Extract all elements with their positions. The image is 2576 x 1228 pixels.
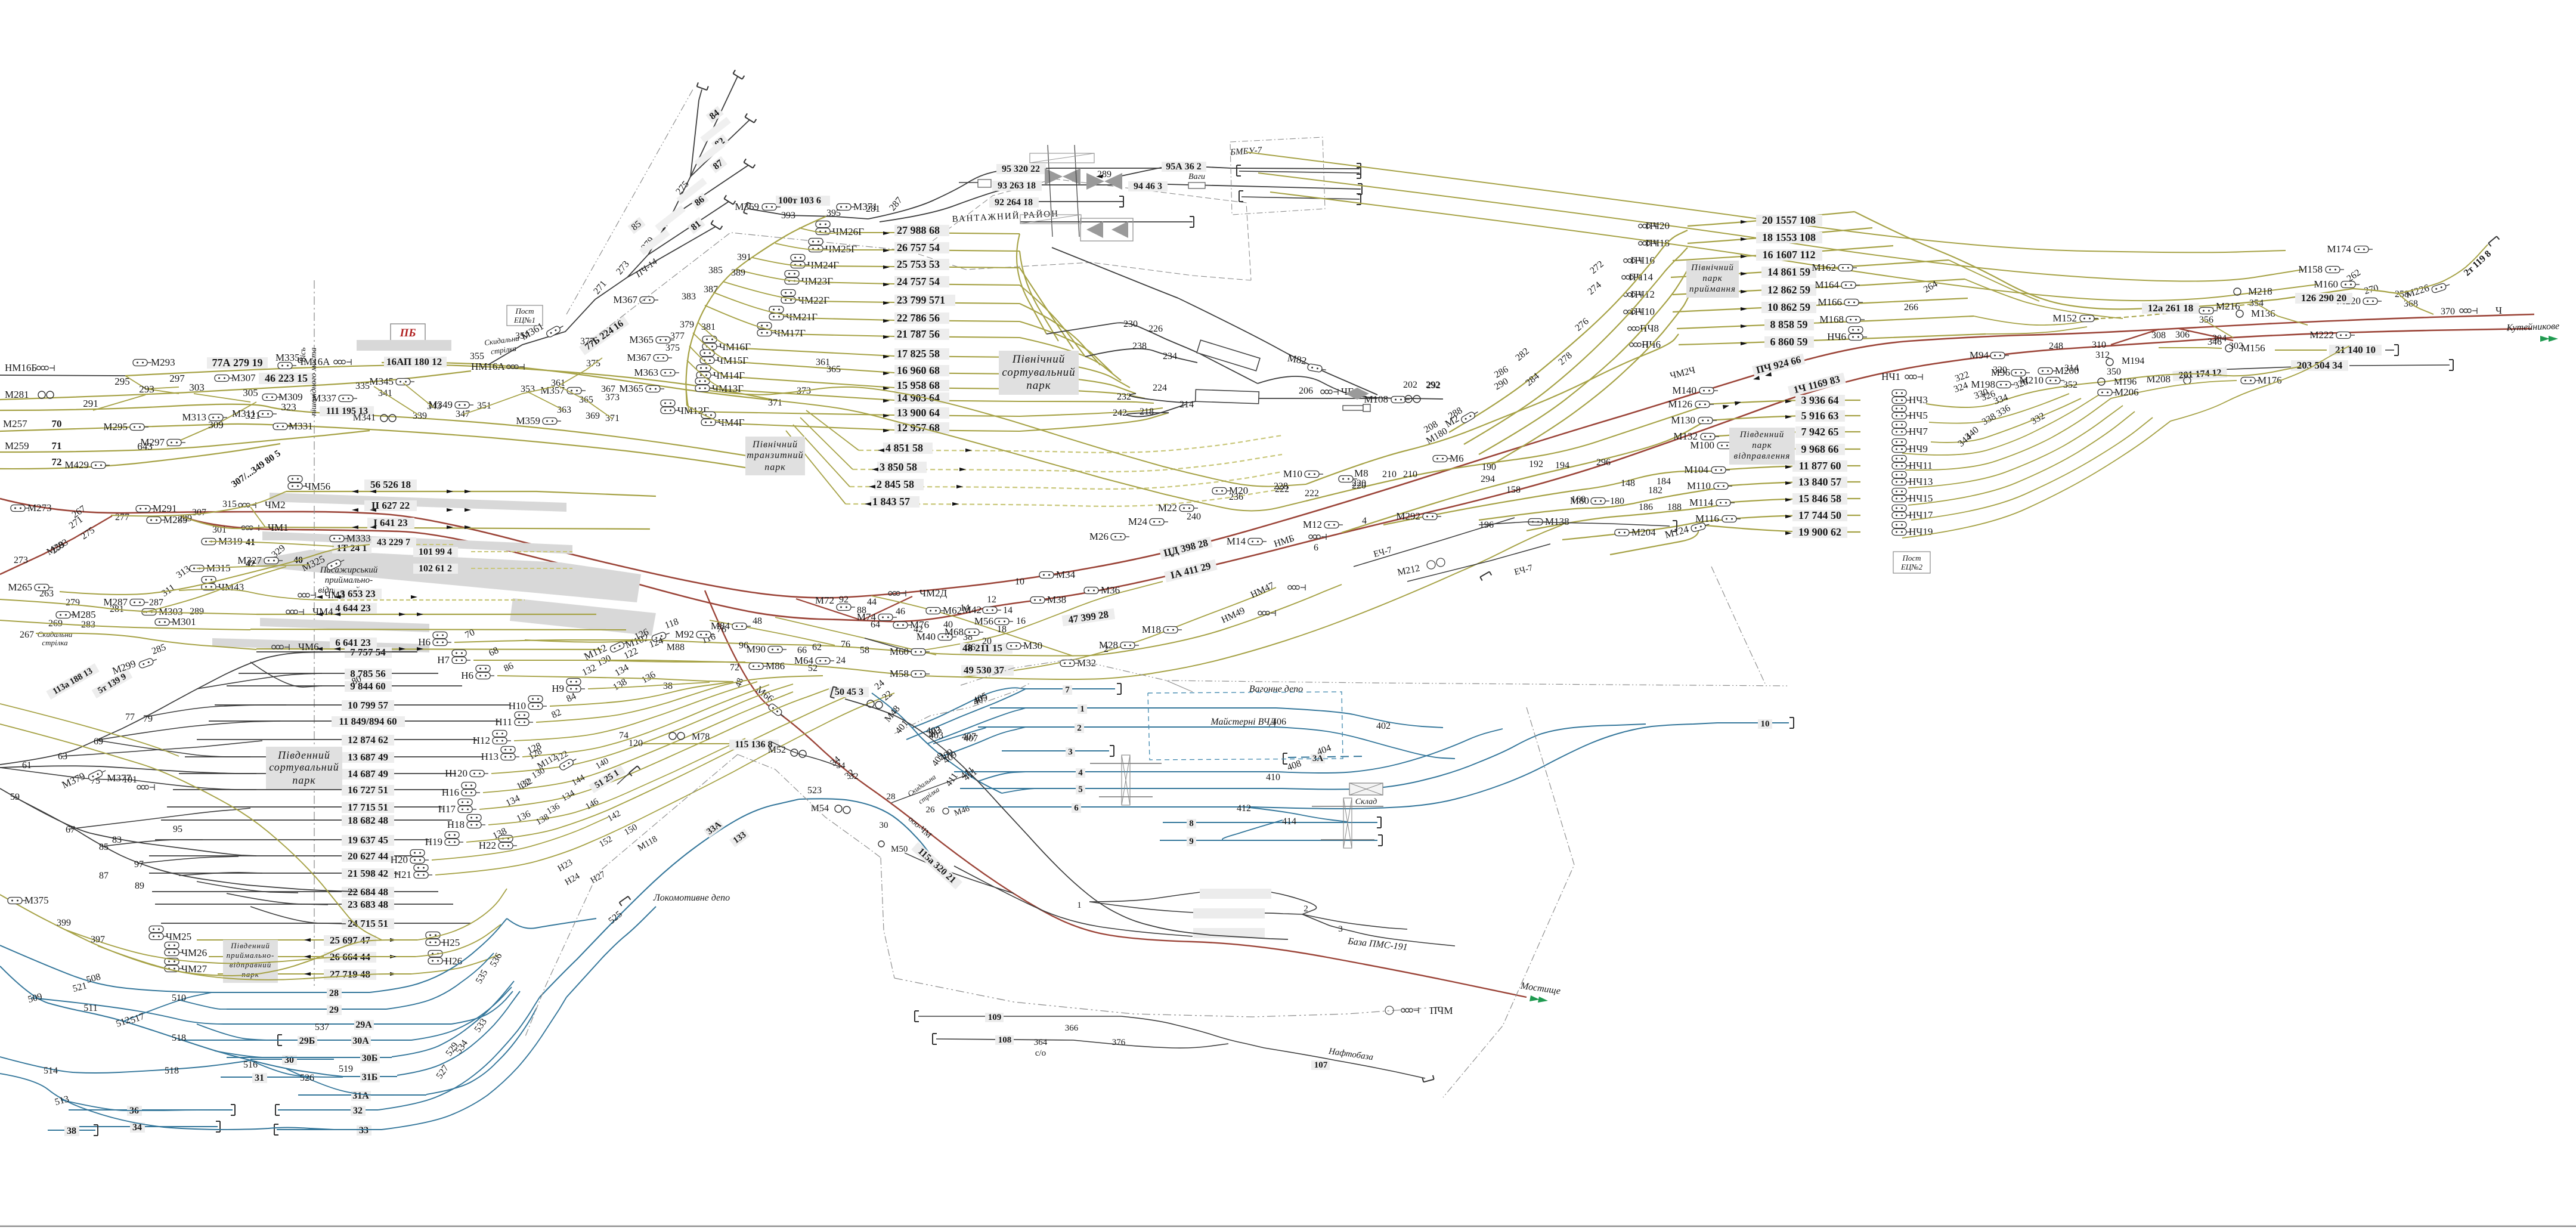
svg-text:Скидальна: Скидальна <box>38 630 73 639</box>
svg-text:ЧМ56: ЧМ56 <box>305 481 330 492</box>
svg-text:24 715 51: 24 715 51 <box>348 918 388 929</box>
svg-text:22 786 56: 22 786 56 <box>897 312 940 324</box>
svg-text:21 598 42: 21 598 42 <box>348 868 388 879</box>
svg-text:ПЧМ: ПЧМ <box>1430 1005 1453 1016</box>
svg-text:11 849/894 60: 11 849/894 60 <box>339 716 397 727</box>
svg-text:36: 36 <box>966 642 976 652</box>
svg-text:парк: парк <box>292 774 315 786</box>
svg-text:297: 297 <box>169 373 185 384</box>
svg-text:8: 8 <box>1189 819 1194 828</box>
svg-text:365: 365 <box>826 364 841 375</box>
svg-text:95 320 22: 95 320 22 <box>1002 164 1040 174</box>
svg-text:281: 281 <box>866 204 880 214</box>
svg-text:Н12: Н12 <box>473 735 490 746</box>
svg-text:23 683 48: 23 683 48 <box>348 899 388 910</box>
svg-text:289: 289 <box>1097 169 1111 180</box>
svg-text:100т 103 6: 100т 103 6 <box>778 196 821 206</box>
svg-text:120: 120 <box>628 738 643 748</box>
svg-text:16АП 180 12: 16АП 180 12 <box>386 356 442 367</box>
svg-text:М52: М52 <box>768 745 786 755</box>
svg-text:306: 306 <box>2175 330 2190 340</box>
svg-text:56 526 18: 56 526 18 <box>370 479 411 490</box>
svg-text:Склад: Склад <box>1355 797 1377 806</box>
svg-text:20 627 44: 20 627 44 <box>348 850 389 862</box>
svg-text:М363: М363 <box>634 367 658 378</box>
svg-text:М349: М349 <box>428 399 453 410</box>
svg-text:М194: М194 <box>2122 356 2144 366</box>
svg-text:парк: парк <box>1752 441 1772 450</box>
svg-text:НЧ7: НЧ7 <box>1909 426 1928 437</box>
svg-text:3 936 64: 3 936 64 <box>1801 394 1839 406</box>
svg-text:79: 79 <box>143 714 153 724</box>
svg-text:230: 230 <box>1123 319 1138 329</box>
svg-text:28: 28 <box>887 792 896 802</box>
svg-text:М34: М34 <box>1056 569 1076 580</box>
svg-text:248: 248 <box>2049 341 2063 351</box>
svg-text:309: 309 <box>208 419 224 431</box>
svg-text:ЧМ3: ЧМ3 <box>324 589 345 601</box>
svg-text:ПЧ20: ПЧ20 <box>1646 220 1670 231</box>
svg-text:190: 190 <box>1482 462 1496 472</box>
svg-text:19 637 45: 19 637 45 <box>348 834 388 846</box>
svg-text:М196: М196 <box>2114 377 2137 387</box>
svg-text:202: 202 <box>1403 380 1417 390</box>
svg-text:ЧМ1: ЧМ1 <box>268 522 289 533</box>
svg-text:ЧМ4Г: ЧМ4Г <box>718 417 745 428</box>
svg-text:20 1557 108: 20 1557 108 <box>1762 214 1816 226</box>
svg-text:294: 294 <box>1481 474 1495 484</box>
svg-text:385: 385 <box>708 265 723 276</box>
svg-text:516: 516 <box>243 1060 258 1070</box>
svg-text:ЧМ43: ЧМ43 <box>218 581 244 593</box>
svg-text:М265: М265 <box>8 581 32 593</box>
svg-text:289: 289 <box>190 607 204 617</box>
svg-text:10: 10 <box>1015 577 1024 587</box>
svg-text:М40: М40 <box>917 631 936 642</box>
svg-text:М86: М86 <box>766 660 785 672</box>
svg-text:29: 29 <box>329 1005 339 1015</box>
svg-text:М281: М281 <box>5 389 29 400</box>
svg-text:148: 148 <box>1621 478 1635 488</box>
svg-text:66: 66 <box>797 645 807 655</box>
svg-text:203 504 34: 203 504 34 <box>2297 360 2343 371</box>
svg-text:12 874 62: 12 874 62 <box>348 734 388 746</box>
svg-text:399: 399 <box>57 918 71 928</box>
svg-text:М359: М359 <box>516 415 540 426</box>
svg-text:46: 46 <box>896 607 905 617</box>
svg-text:95А 36 2: 95А 36 2 <box>1166 162 1202 172</box>
svg-text:М104: М104 <box>1684 464 1708 475</box>
svg-text:М88: М88 <box>667 642 685 652</box>
svg-text:М22: М22 <box>1158 502 1177 514</box>
svg-text:сортувальний: сортувальний <box>269 761 339 773</box>
svg-text:М138: М138 <box>1545 516 1569 527</box>
svg-text:М114: М114 <box>1689 497 1713 508</box>
svg-text:232: 232 <box>1117 392 1131 402</box>
svg-text:ЧМ25Г: ЧМ25Г <box>825 243 857 255</box>
svg-text:6 860 59: 6 860 59 <box>1770 336 1808 348</box>
svg-text:277: 277 <box>115 512 129 522</box>
svg-text:М30: М30 <box>1023 640 1042 651</box>
svg-text:М375: М375 <box>24 895 49 906</box>
svg-text:76: 76 <box>841 639 850 649</box>
svg-text:М301: М301 <box>172 616 196 627</box>
svg-text:226: 226 <box>1148 324 1163 334</box>
svg-text:М110: М110 <box>1687 480 1711 491</box>
svg-text:16 727 51: 16 727 51 <box>348 784 388 796</box>
svg-text:387: 387 <box>704 284 718 295</box>
svg-text:Південний: Південний <box>230 941 270 950</box>
svg-text:Н9: Н9 <box>552 683 564 694</box>
svg-text:М166: М166 <box>1818 296 1842 308</box>
svg-text:188: 188 <box>1667 502 1682 512</box>
svg-text:ЧМ24Г: ЧМ24Г <box>807 259 839 271</box>
svg-text:31Б: 31Б <box>362 1072 378 1082</box>
svg-text:М96: М96 <box>1991 367 2010 378</box>
svg-text:М313: М313 <box>182 412 206 423</box>
svg-text:НЧ13: НЧ13 <box>1909 476 1933 487</box>
svg-text:М156: М156 <box>2241 342 2265 354</box>
svg-text:Н17: Н17 <box>438 803 456 815</box>
svg-text:М168: М168 <box>1819 314 1844 325</box>
svg-text:29А: 29А <box>355 1020 372 1030</box>
svg-text:ЧМ2Д: ЧМ2Д <box>919 587 948 599</box>
svg-text:М8: М8 <box>1354 468 1368 479</box>
svg-text:парк: парк <box>1702 274 1723 283</box>
svg-text:526: 526 <box>300 1073 314 1083</box>
svg-text:М130: М130 <box>1671 415 1695 426</box>
svg-text:303: 303 <box>189 382 205 393</box>
svg-text:92 264 18: 92 264 18 <box>995 197 1033 208</box>
svg-text:64: 64 <box>871 620 880 630</box>
svg-text:13 687 49: 13 687 49 <box>348 751 388 763</box>
svg-text:Майстерні ВЧД: Майстерні ВЧД <box>1210 717 1276 727</box>
svg-text:Північний: Північний <box>1690 263 1734 273</box>
svg-text:1: 1 <box>1077 901 1082 910</box>
svg-text:30: 30 <box>284 1055 294 1065</box>
svg-text:Кутейникове: Кутейникове <box>2506 321 2559 333</box>
svg-text:33: 33 <box>359 1125 369 1136</box>
svg-text:сортувальний: сортувальний <box>1002 366 1075 379</box>
svg-text:210: 210 <box>1403 469 1417 480</box>
svg-text:242: 242 <box>1113 408 1127 418</box>
svg-text:ЧМ16Г: ЧМ16Г <box>719 341 751 352</box>
svg-text:6: 6 <box>1314 543 1318 553</box>
svg-text:13 840 57: 13 840 57 <box>1798 476 1841 488</box>
svg-text:228: 228 <box>1274 481 1288 491</box>
svg-text:414: 414 <box>1282 816 1296 827</box>
svg-text:2 845 58: 2 845 58 <box>877 478 914 490</box>
svg-text:94 46 3: 94 46 3 <box>1134 181 1162 191</box>
svg-text:14: 14 <box>1003 605 1013 615</box>
svg-text:М333: М333 <box>346 533 371 544</box>
svg-text:М297: М297 <box>140 437 165 448</box>
svg-text:М18: М18 <box>1142 624 1161 635</box>
svg-text:95: 95 <box>173 824 182 834</box>
svg-text:514: 514 <box>44 1066 58 1076</box>
svg-text:М12: М12 <box>1303 519 1322 530</box>
svg-text:М50: М50 <box>891 845 908 854</box>
svg-text:308: 308 <box>2151 330 2166 341</box>
svg-text:М293: М293 <box>151 357 175 368</box>
svg-text:366: 366 <box>1065 1023 1079 1033</box>
svg-text:Н22: Н22 <box>479 840 496 851</box>
svg-text:321: 321 <box>245 410 261 421</box>
svg-text:38: 38 <box>663 681 673 691</box>
svg-text:375: 375 <box>586 358 600 369</box>
svg-text:126 290 20: 126 290 20 <box>2301 292 2347 304</box>
svg-text:Північний: Північний <box>752 440 798 450</box>
svg-text:67: 67 <box>66 825 75 835</box>
svg-text:59: 59 <box>10 792 20 802</box>
svg-text:15 846 58: 15 846 58 <box>1798 493 1841 505</box>
svg-text:102 61 2: 102 61 2 <box>419 564 452 574</box>
svg-text:М259: М259 <box>5 440 29 451</box>
svg-text:ЧМ25: ЧМ25 <box>166 931 191 942</box>
svg-text:26: 26 <box>926 805 936 815</box>
svg-text:222: 222 <box>1305 488 1319 499</box>
svg-text:М56: М56 <box>974 615 993 627</box>
svg-text:5 916 63: 5 916 63 <box>1801 410 1839 422</box>
svg-text:М429: М429 <box>64 459 89 471</box>
svg-text:107: 107 <box>1314 1060 1328 1070</box>
svg-text:523: 523 <box>807 785 822 796</box>
svg-text:М72: М72 <box>815 595 834 606</box>
svg-text:369: 369 <box>586 411 600 421</box>
svg-text:1 843 57: 1 843 57 <box>872 496 910 508</box>
svg-text:М292: М292 <box>1396 511 1420 522</box>
svg-text:377: 377 <box>580 336 595 347</box>
svg-text:77: 77 <box>125 712 135 722</box>
svg-text:28: 28 <box>329 988 339 998</box>
svg-text:7 942 65: 7 942 65 <box>1801 426 1839 438</box>
svg-text:17 744 50: 17 744 50 <box>1798 509 1841 521</box>
svg-text:50 45 3: 50 45 3 <box>835 687 863 697</box>
svg-text:12: 12 <box>987 595 996 605</box>
svg-text:Н120: Н120 <box>445 768 467 779</box>
svg-text:М174: М174 <box>2327 243 2351 255</box>
svg-text:377: 377 <box>670 331 685 341</box>
svg-text:70: 70 <box>52 418 62 429</box>
svg-text:М140: М140 <box>1672 385 1696 396</box>
svg-text:Н16: Н16 <box>442 787 459 798</box>
svg-text:410: 410 <box>1266 772 1280 782</box>
svg-text:20: 20 <box>982 636 992 647</box>
svg-text:Н6: Н6 <box>461 670 473 681</box>
svg-text:М257: М257 <box>3 418 27 429</box>
svg-text:293: 293 <box>139 383 154 395</box>
svg-text:М94: М94 <box>1970 349 1989 361</box>
svg-text:ПЧ14: ПЧ14 <box>1629 271 1654 283</box>
svg-text:М24: М24 <box>1128 516 1148 527</box>
svg-text:М291: М291 <box>153 503 177 514</box>
svg-text:М28: М28 <box>1099 639 1118 651</box>
svg-text:М36: М36 <box>1101 584 1120 596</box>
svg-text:291: 291 <box>83 398 98 409</box>
svg-text:304: 304 <box>2212 333 2227 344</box>
svg-text:9: 9 <box>1189 837 1194 846</box>
svg-text:314: 314 <box>2064 363 2079 373</box>
svg-text:21 787 56: 21 787 56 <box>897 328 940 340</box>
svg-text:395: 395 <box>826 208 841 218</box>
svg-text:240: 240 <box>1187 512 1201 522</box>
svg-text:НМ16Б: НМ16Б <box>5 362 37 373</box>
svg-text:М126: М126 <box>1668 398 1692 410</box>
svg-text:355: 355 <box>470 351 484 361</box>
svg-text:96: 96 <box>739 641 748 651</box>
svg-text:379: 379 <box>680 320 694 330</box>
svg-text:58: 58 <box>860 645 869 655</box>
svg-text:М377: М377 <box>107 772 131 784</box>
svg-text:10: 10 <box>1761 719 1770 729</box>
svg-text:ЧМ4: ЧМ4 <box>312 606 333 617</box>
svg-text:М108: М108 <box>1364 394 1388 405</box>
svg-text:7: 7 <box>1065 685 1070 695</box>
svg-text:307: 307 <box>192 508 206 518</box>
svg-text:310: 310 <box>2092 340 2106 350</box>
svg-text:5: 5 <box>1078 785 1083 794</box>
svg-text:М58: М58 <box>890 668 909 679</box>
svg-text:23 799 571: 23 799 571 <box>897 294 945 306</box>
svg-text:69: 69 <box>94 737 103 747</box>
svg-text:ЧМ16А: ЧМ16А <box>297 356 330 367</box>
svg-text:12а 261 18: 12а 261 18 <box>2148 302 2194 314</box>
svg-text:8 858 59: 8 858 59 <box>1770 318 1808 330</box>
svg-text:НЧ5: НЧ5 <box>1909 410 1928 421</box>
svg-text:М365: М365 <box>619 383 643 394</box>
svg-text:М60: М60 <box>890 646 909 657</box>
svg-text:НМ16А: НМ16А <box>471 361 505 372</box>
svg-text:315: 315 <box>222 499 237 509</box>
svg-text:182: 182 <box>1648 485 1662 496</box>
svg-text:31: 31 <box>255 1073 264 1083</box>
svg-text:518: 518 <box>172 1033 186 1043</box>
svg-text:2: 2 <box>1304 904 1308 914</box>
svg-text:Н13: Н13 <box>481 751 499 762</box>
svg-text:ЕЦ№2: ЕЦ№2 <box>1900 562 1923 571</box>
svg-text:72: 72 <box>52 456 62 468</box>
svg-text:210: 210 <box>1382 469 1397 480</box>
svg-text:М206: М206 <box>2114 386 2139 398</box>
svg-text:11 877 60: 11 877 60 <box>1798 460 1841 472</box>
svg-text:4: 4 <box>1078 768 1083 778</box>
svg-text:10 799 57: 10 799 57 <box>348 700 389 711</box>
svg-text:30А: 30А <box>352 1036 369 1046</box>
svg-text:М210: М210 <box>2019 375 2044 386</box>
svg-text:115 136 8: 115 136 8 <box>735 740 772 750</box>
svg-text:14 687 49: 14 687 49 <box>348 768 388 780</box>
svg-text:ЧМ6: ЧМ6 <box>298 641 319 652</box>
svg-text:312: 312 <box>2095 350 2110 360</box>
svg-text:16: 16 <box>1016 616 1026 626</box>
svg-text:Н11: Н11 <box>495 716 512 728</box>
svg-text:97: 97 <box>134 859 144 870</box>
svg-text:196: 196 <box>1479 520 1494 530</box>
svg-text:44: 44 <box>867 597 877 607</box>
svg-text:3 850 58: 3 850 58 <box>880 461 917 473</box>
svg-text:14 861 59: 14 861 59 <box>1767 266 1810 278</box>
svg-text:17 825 58: 17 825 58 <box>897 348 940 360</box>
svg-text:352: 352 <box>2063 380 2077 390</box>
svg-text:214: 214 <box>1179 400 1194 410</box>
svg-text:511: 511 <box>83 1003 97 1013</box>
svg-text:206: 206 <box>1299 386 1313 396</box>
svg-text:397: 397 <box>91 935 105 945</box>
svg-text:М164: М164 <box>1815 279 1839 290</box>
svg-text:М32: М32 <box>1077 657 1096 669</box>
svg-text:Н21: Н21 <box>394 869 411 880</box>
svg-text:с/о: с/о <box>1035 1048 1046 1058</box>
svg-text:52: 52 <box>808 663 818 673</box>
svg-text:194: 194 <box>1555 460 1569 471</box>
svg-text:393: 393 <box>781 211 795 221</box>
svg-text:38: 38 <box>67 1126 76 1136</box>
svg-text:224: 224 <box>1153 383 1167 393</box>
svg-text:4: 4 <box>1362 516 1367 526</box>
svg-text:25 753 53: 25 753 53 <box>897 258 940 270</box>
svg-text:М116: М116 <box>1695 513 1719 524</box>
svg-text:220: 220 <box>1352 481 1366 491</box>
svg-text:26 757 54: 26 757 54 <box>897 242 940 253</box>
svg-text:218: 218 <box>1140 407 1154 417</box>
svg-text:М78: М78 <box>692 732 710 742</box>
svg-text:М158: М158 <box>2298 264 2323 275</box>
svg-text:12 862 59: 12 862 59 <box>1767 284 1810 296</box>
svg-text:43 229 7: 43 229 7 <box>377 537 410 548</box>
svg-text:Пост: Пост <box>1902 553 1921 562</box>
svg-text:61: 61 <box>22 760 32 771</box>
svg-text:Локомотивне депо: Локомотивне депо <box>653 893 730 903</box>
svg-text:391: 391 <box>737 252 751 262</box>
svg-text:30Б: 30Б <box>362 1053 378 1063</box>
svg-text:Н10: Н10 <box>509 700 526 712</box>
svg-text:4 644 23: 4 644 23 <box>335 602 371 614</box>
svg-text:М273: М273 <box>27 502 52 514</box>
svg-text:383: 383 <box>682 292 696 302</box>
svg-text:М367: М367 <box>627 352 651 363</box>
svg-text:М80: М80 <box>1570 495 1589 506</box>
svg-text:М84: М84 <box>711 620 730 632</box>
svg-text:180: 180 <box>1610 496 1624 506</box>
svg-text:518: 518 <box>165 1066 179 1076</box>
svg-text:М100: М100 <box>1690 440 1714 451</box>
svg-text:88: 88 <box>857 605 866 615</box>
svg-text:109: 109 <box>988 1013 1002 1022</box>
svg-text:НЧ6: НЧ6 <box>1827 331 1846 342</box>
svg-text:71: 71 <box>52 440 62 451</box>
svg-text:приймання: приймання <box>1689 284 1736 294</box>
svg-text:ЧМ26Г: ЧМ26Г <box>832 226 864 237</box>
svg-text:М216: М216 <box>2216 301 2240 312</box>
svg-text:М365: М365 <box>629 334 654 345</box>
svg-text:приймально-: приймально- <box>325 576 373 585</box>
svg-text:15 958 68: 15 958 68 <box>897 379 940 391</box>
svg-text:24 757 54: 24 757 54 <box>897 276 940 287</box>
svg-text:292: 292 <box>1426 380 1440 390</box>
svg-text:296: 296 <box>1596 457 1611 468</box>
svg-text:М136: М136 <box>2251 308 2275 319</box>
svg-text:85: 85 <box>99 842 109 852</box>
svg-text:24: 24 <box>836 655 846 666</box>
svg-text:48: 48 <box>753 616 762 626</box>
svg-text:407: 407 <box>962 732 976 742</box>
svg-text:М38: М38 <box>1047 594 1066 605</box>
svg-text:Н7: Н7 <box>437 654 450 666</box>
svg-text:М90: М90 <box>747 644 766 655</box>
svg-text:537: 537 <box>315 1022 329 1032</box>
svg-text:М222: М222 <box>2309 329 2334 341</box>
svg-text:транзитний: транзитний <box>747 450 803 460</box>
